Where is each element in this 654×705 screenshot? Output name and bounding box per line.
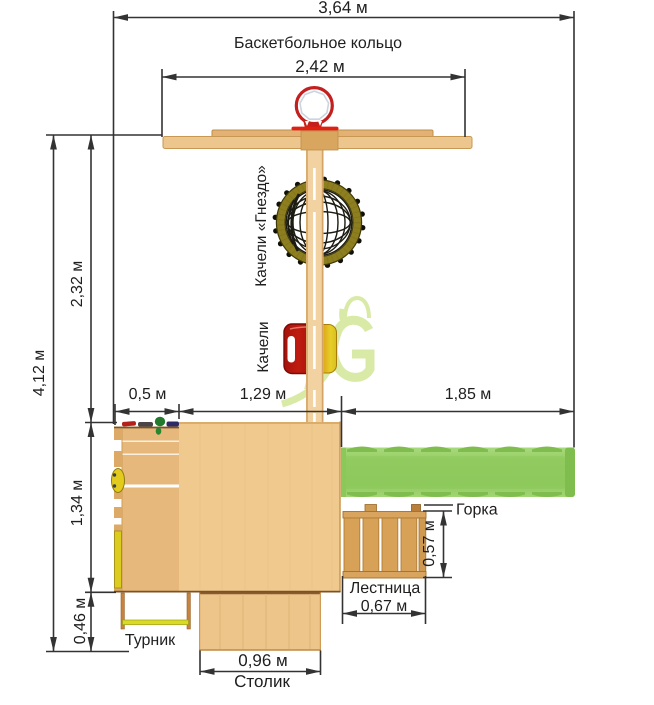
svg-text:3,64 м: 3,64 м xyxy=(318,0,368,17)
svg-text:Качели «Гнездо»: Качели «Гнездо» xyxy=(253,165,270,287)
svg-text:0,96 м: 0,96 м xyxy=(238,651,288,670)
svg-text:0,57 м: 0,57 м xyxy=(421,520,438,567)
svg-text:1,85 м: 1,85 м xyxy=(445,386,492,403)
svg-text:1,29 м: 1,29 м xyxy=(240,386,287,403)
svg-text:Качели: Качели xyxy=(255,321,272,372)
svg-text:Столик: Столик xyxy=(234,672,290,691)
svg-text:2,42 м: 2,42 м xyxy=(295,57,345,76)
svg-text:Горка: Горка xyxy=(456,502,498,519)
svg-text:1,34 м: 1,34 м xyxy=(69,480,86,527)
svg-text:0,67 м: 0,67 м xyxy=(361,598,408,615)
svg-text:Лестница: Лестница xyxy=(350,580,421,597)
svg-text:Турник: Турник xyxy=(125,632,176,649)
svg-text:0,46 м: 0,46 м xyxy=(72,598,89,645)
svg-text:2,32 м: 2,32 м xyxy=(69,261,86,308)
svg-text:4,12 м: 4,12 м xyxy=(31,350,48,397)
svg-text:0,5 м: 0,5 м xyxy=(129,386,167,403)
svg-text:Баскетбольное кольцо: Баскетбольное кольцо xyxy=(234,35,402,52)
